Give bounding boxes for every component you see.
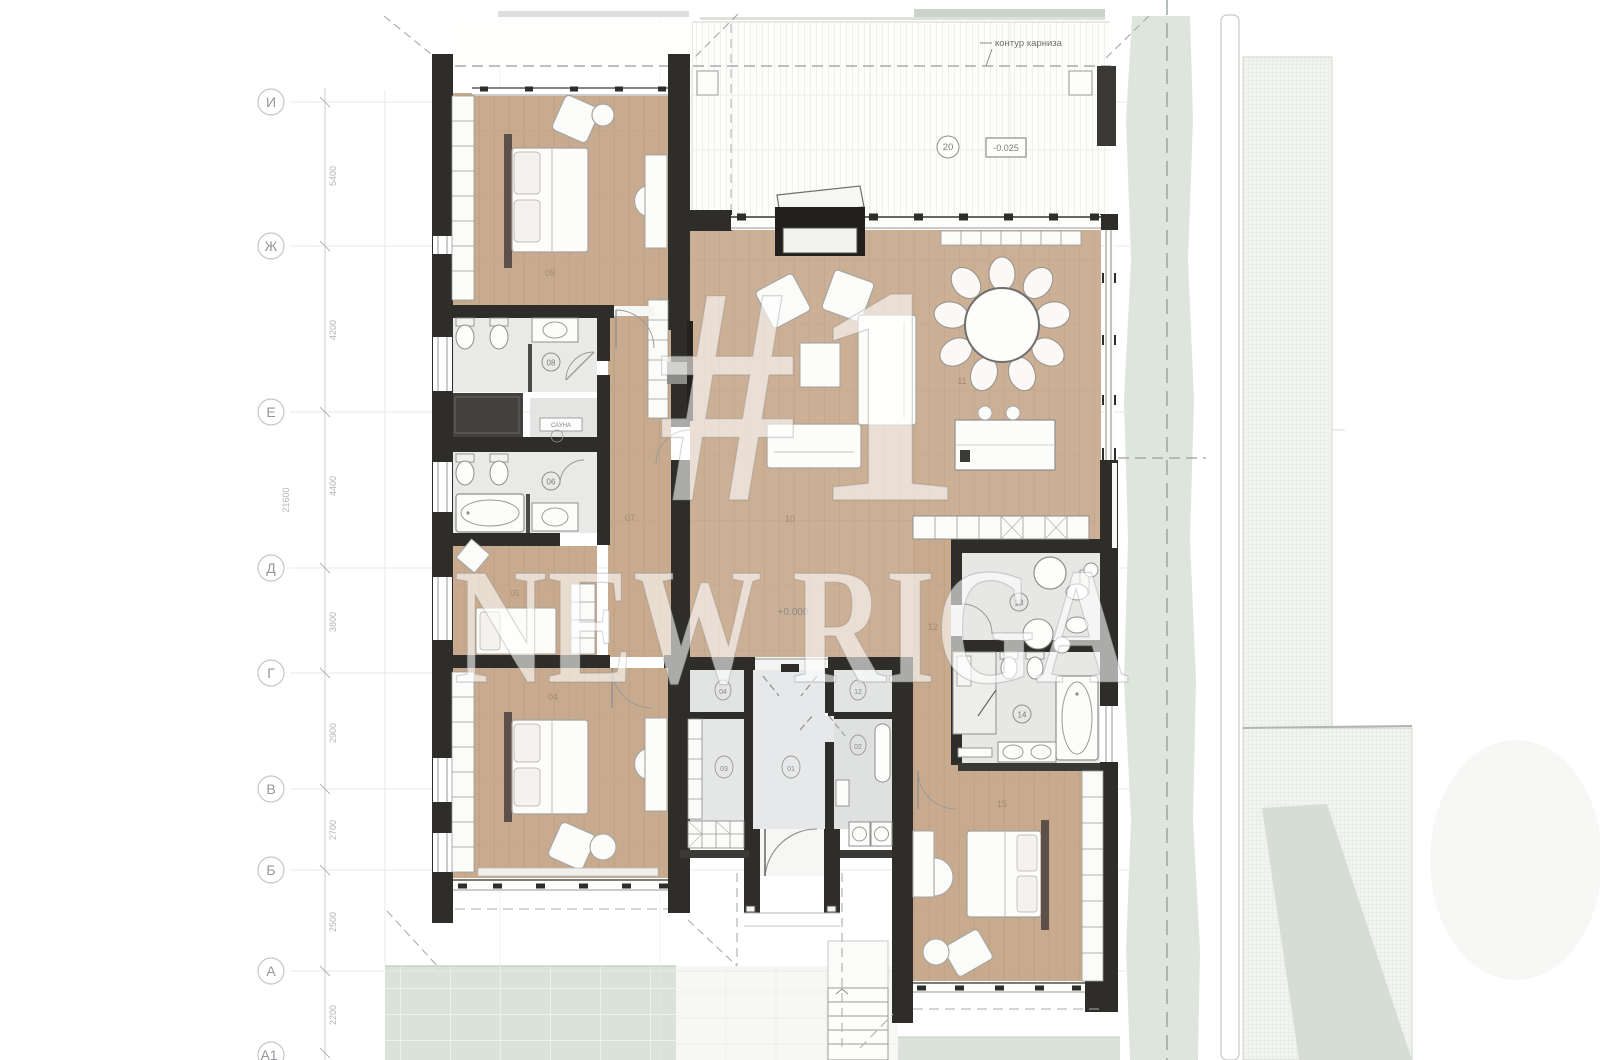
svg-text:01: 01 <box>787 766 795 773</box>
svg-text:2700: 2700 <box>328 820 338 840</box>
svg-text:21600: 21600 <box>281 487 291 512</box>
svg-text:20: 20 <box>943 142 954 153</box>
svg-text:2900: 2900 <box>328 723 338 743</box>
svg-text:NEW RIGA: NEW RIGA <box>454 536 1129 719</box>
svg-text:07: 07 <box>625 513 635 523</box>
svg-text:1: 1 <box>808 223 964 568</box>
svg-text:#: # <box>658 222 797 567</box>
svg-text:В: В <box>266 781 275 797</box>
svg-text:САУНА: САУНА <box>551 423 571 429</box>
svg-text:08: 08 <box>547 359 556 368</box>
svg-text:А: А <box>266 963 276 979</box>
svg-text:Д: Д <box>266 560 276 576</box>
svg-text:4400: 4400 <box>328 476 338 496</box>
svg-text:Г: Г <box>267 665 275 681</box>
svg-text:3800: 3800 <box>328 612 338 632</box>
svg-text:Б: Б <box>266 862 275 878</box>
svg-text:А1: А1 <box>260 1047 277 1060</box>
svg-text:06: 06 <box>547 478 556 487</box>
svg-text:-0.025: -0.025 <box>993 143 1019 153</box>
svg-text:5400: 5400 <box>328 166 338 186</box>
svg-text:4200: 4200 <box>328 320 338 340</box>
svg-text:09: 09 <box>545 268 555 278</box>
svg-text:02: 02 <box>854 744 862 751</box>
svg-text:03: 03 <box>720 766 728 773</box>
svg-text:контур карниза: контур карниза <box>995 38 1063 49</box>
svg-text:2500: 2500 <box>328 912 338 932</box>
svg-text:Е: Е <box>266 404 275 420</box>
svg-text:И: И <box>266 94 276 110</box>
svg-text:2200: 2200 <box>328 1005 338 1025</box>
svg-text:Ж: Ж <box>265 238 278 254</box>
svg-text:15: 15 <box>997 799 1007 809</box>
